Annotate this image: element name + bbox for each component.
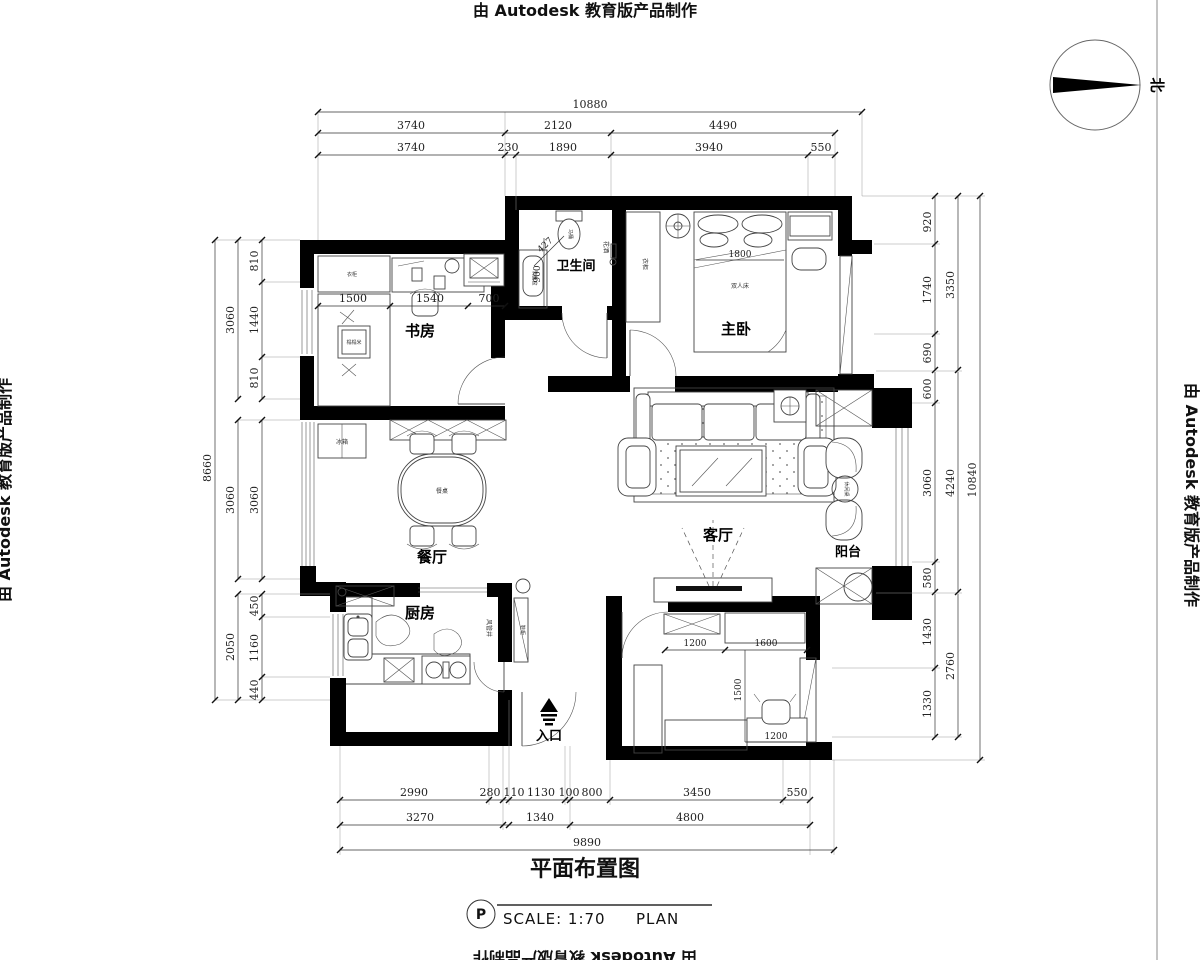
room-label-dining: 餐厅 [417,548,447,566]
room-bathroom: 马桶 洗面盆 花洒 427 900 卫生间 [519,211,616,308]
dim-top-r2-1: 2120 [544,119,572,132]
master-wardrobe-label: 衣柜 [641,258,649,270]
plan-label: PLAN [636,910,679,928]
watermark-left: 由 Autodesk 教育版产品制作 [0,378,14,602]
dim-top-r2-2: 4490 [709,119,737,132]
windows [302,256,908,742]
room-living: 客厅 [618,388,836,602]
plan-tag: P [476,907,486,923]
dim-bot-r1-0: 2990 [400,786,428,799]
room-kitchen: 风管井 厨房 [336,586,493,684]
master-door-arc [630,330,676,376]
dim-bot-r1-1: 280 [480,786,501,799]
shoe-cabinet-label: 鞋柜 [519,625,526,635]
dim-top-r3-0: 3740 [397,141,425,154]
toilet: 马桶 [556,211,582,249]
dim-bot-r2-2: 4800 [676,811,704,824]
bed-label: 双人床 [731,282,749,290]
north-arrow: 北 [1050,40,1166,130]
floorplan-canvas: 由 Autodesk 教育版产品制作 由 Autodesk 教育版产品制作 由 … [0,0,1200,960]
dim-bot-r1-4: 100 [559,786,580,799]
dim-left-m1: 3060 [224,486,237,514]
watermark-right: 由 Autodesk 教育版产品制作 [1182,383,1200,607]
dim-bot-r1-7: 550 [787,786,808,799]
tatami-table: 榻榻米 [338,310,370,376]
dim-top-r3-3: 3940 [695,141,723,154]
dim-right-m0: 3350 [944,271,957,299]
dim-right-i6: 1430 [921,618,934,646]
north-arrow-needle [1053,77,1141,93]
bedroom2-wardrobe-bottom [665,720,747,750]
dim-right-m2: 2760 [944,652,957,680]
dim-study-1: 1540 [416,292,444,305]
dim-study-0: 1500 [339,292,367,305]
dim-bot-r2-1: 1340 [526,811,554,824]
dim-bot-r1-6: 3450 [683,786,711,799]
dim-b2-3: 1200 [765,732,788,742]
room-label-study: 书房 [405,322,435,340]
title-block: 平面布置图 P SCALE: 1:70 PLAN [467,856,712,928]
dim-bot-r1-3: 1130 [527,786,555,799]
room-study: 衣柜 榻榻米 1500 1540 700 [315,254,508,406]
kitchen-sliding-door [418,588,487,592]
room-bedroom2: 1200 1600 1500 1200 [634,613,810,753]
entrance-arrow [540,698,558,726]
dim-bot-r2-0: 3270 [406,811,434,824]
dim-left-i0: 810 [248,251,261,272]
dim-b2-2: 1500 [734,678,744,701]
room-label-living: 客厅 [702,526,733,544]
watermark-top: 由 Autodesk 教育版产品制作 [473,1,697,20]
toilet-label: 马桶 [567,229,574,239]
tatami-label: 榻榻米 [346,339,361,346]
dim-chain-left: 8660 3060 3060 2050 810 1440 810 3060 45… [201,237,330,703]
armchair-left [618,438,656,496]
dim-left-m2: 2050 [224,633,237,661]
dim-bot-r1-2: 110 [504,786,525,799]
dim-bath-900: 900 [533,265,543,282]
room-label-master: 主卧 [721,320,751,338]
room-label-entrance: 入口 [536,729,562,744]
bedroom2-door-arc [622,612,668,658]
kitchen-door-arc [474,662,504,692]
hall-stool [516,579,530,593]
dining-chairs-top [407,431,479,454]
dim-right-m1: 4240 [944,469,957,497]
room-label-kitchen: 厨房 [405,604,435,622]
dining-cabinet [390,420,506,440]
master-east-window [840,256,852,374]
dim-b2-0: 1200 [684,639,707,649]
dim-bed-1800: 1800 [729,250,752,260]
dim-right-i7: 1330 [921,690,934,718]
desk-fan [445,259,459,273]
dim-top-overall: 10880 [573,98,608,111]
bedroom2-wardrobe-left [634,665,662,753]
balcony-east-window [896,428,908,566]
dim-bot-r1-5: 800 [582,786,603,799]
dim-chain-right: 920 1740 690 600 3060 580 1430 1330 3350… [832,193,985,763]
dim-right-i2: 690 [921,343,934,364]
dining-table-label: 餐桌 [436,487,448,495]
dim-right-overall: 10840 [966,463,979,498]
dim-left-i1: 1440 [248,306,261,334]
shower-label: 花洒 [602,241,610,253]
dim-left-i6: 440 [248,680,261,701]
side-table-lamp [774,390,806,422]
study-dim-chain: 1500 1540 700 [315,292,508,309]
dining-west-window [302,422,314,566]
dim-left-i4: 450 [248,596,261,617]
ceiling-fan [666,214,690,238]
dim-right-i4: 3060 [921,469,934,497]
dim-left-m0: 3060 [224,306,237,334]
shaft-box-bottom [816,568,872,604]
dim-top-r3-4: 550 [811,141,832,154]
leisure-table-label: 休闲桌 [843,481,850,496]
dim-right-i0: 920 [921,212,934,233]
fridge-label: 冰箱 [336,438,348,446]
drawing-title: 平面布置图 [530,856,640,882]
study-monitor [464,254,504,286]
kitchen-small-cabinet [384,658,414,682]
study-wardrobe-label: 衣柜 [347,271,357,278]
dim-bot-overall: 9890 [573,836,601,849]
room-master: 衣柜 1800 双人床 主卧 [626,212,832,352]
study-door-arc [458,357,505,404]
dim-left-i2: 810 [248,368,261,389]
dim-left-i3: 3060 [248,486,261,514]
duct-label: 风管井 [485,619,493,637]
dim-right-i3: 600 [921,379,934,400]
dim-top-r3-2: 1890 [549,141,577,154]
entrance-area: 鞋柜 入口 [514,579,562,744]
fridge: 冰箱 [318,424,366,458]
dim-left-i5: 1160 [248,634,261,662]
north-label: 北 [1148,77,1166,92]
scale-label: SCALE: 1:70 [503,910,606,928]
gas-stove [422,656,470,684]
coffee-table [676,446,766,496]
room-label-balcony: 阳台 [835,544,861,560]
lounge-chair-2 [826,500,862,540]
bathroom-door-arc [562,313,607,358]
bedroom2-xcabinet [664,614,720,634]
kitchen-sink [344,614,372,660]
dining-table: 餐桌 [398,454,486,526]
room-label-bathroom: 卫生间 [556,258,595,274]
dim-top-r2-0: 3740 [397,119,425,132]
kitchen-west-window [333,614,343,676]
dim-top-r3-1: 230 [498,141,519,154]
bedside-stool [792,248,826,270]
dim-bath-427: 427 [536,236,556,255]
dim-right-i1: 1740 [921,276,934,304]
room-dining: 冰箱 餐桌 餐厅 [318,420,506,566]
dim-left-overall: 8660 [201,454,214,482]
figure-sketch-2 [434,629,462,656]
dim-study-2: 700 [479,292,500,305]
dim-b2-1: 1600 [755,639,778,649]
watermark-bottom: 由 Autodesk 教育版产品制作 [473,948,697,960]
lounge-chair-1 [826,438,862,478]
study-west-window [302,290,312,354]
dim-right-i5: 580 [921,568,934,589]
dining-chairs-bottom [407,526,479,549]
hall-shoe-cabinet: 鞋柜 [514,598,528,662]
